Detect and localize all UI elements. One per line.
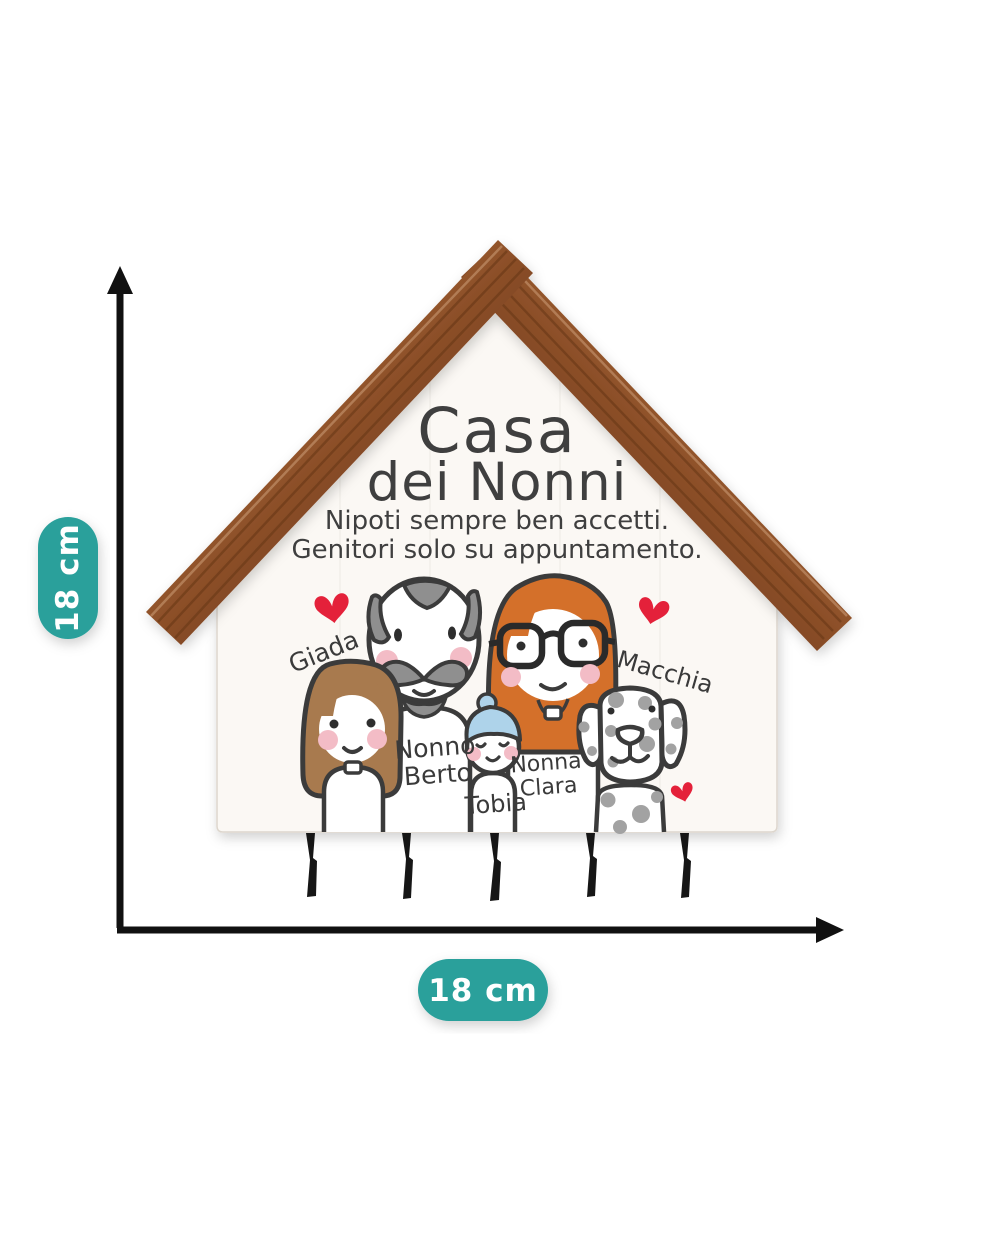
name-baby: Tobia — [463, 788, 528, 820]
grandma-collar — [545, 707, 561, 719]
dog-nose — [618, 727, 643, 744]
dog-eye-right — [649, 706, 656, 713]
width-dimension-arrow — [117, 917, 844, 943]
name-grandma-line2: Clara — [519, 773, 578, 802]
girl-blush-right — [367, 729, 387, 749]
title-line2: dei Nonni — [367, 452, 628, 513]
girl-body — [324, 767, 383, 832]
height-label-text: 18 cm — [50, 523, 86, 633]
key-hook — [306, 833, 317, 897]
height-dimension-label: 18 cm — [38, 517, 98, 639]
dog-eye-left — [608, 708, 615, 715]
dog-ear-right — [661, 701, 685, 767]
girl-collar — [345, 762, 361, 773]
key-hook — [490, 833, 501, 901]
grandpa-eye-right — [448, 627, 456, 640]
key-hook — [680, 833, 691, 898]
grandma-eye-right — [579, 639, 588, 648]
grandma-blush-right — [580, 664, 600, 684]
key-hooks — [306, 833, 691, 901]
width-dimension-label: 18 cm — [418, 959, 548, 1021]
girl-eye-left — [330, 720, 339, 729]
name-grandpa-line2: Berto — [403, 758, 473, 792]
subtitle-line2: Genitori solo su appuntamento. — [292, 535, 703, 565]
arrowhead-up-icon — [107, 266, 133, 294]
key-hook — [586, 833, 597, 897]
product-diagram: Casa dei Nonni Nipoti sempre ben accetti… — [0, 0, 1000, 1250]
girl-eye-right — [367, 719, 376, 728]
subtitle-line1: Nipoti sempre ben accetti. — [325, 506, 669, 536]
grandma-eye-left — [517, 642, 526, 651]
girl-blush-left — [318, 730, 338, 750]
grandpa-eye-left — [394, 629, 402, 642]
arrowhead-right-icon — [816, 917, 844, 943]
grandma-blush-left — [501, 667, 521, 687]
product-dimension-image: Casa dei Nonni Nipoti sempre ben accetti… — [0, 0, 1000, 1250]
height-dimension-arrow — [107, 266, 133, 928]
key-hook — [402, 833, 413, 899]
width-label-text: 18 cm — [428, 973, 538, 1009]
